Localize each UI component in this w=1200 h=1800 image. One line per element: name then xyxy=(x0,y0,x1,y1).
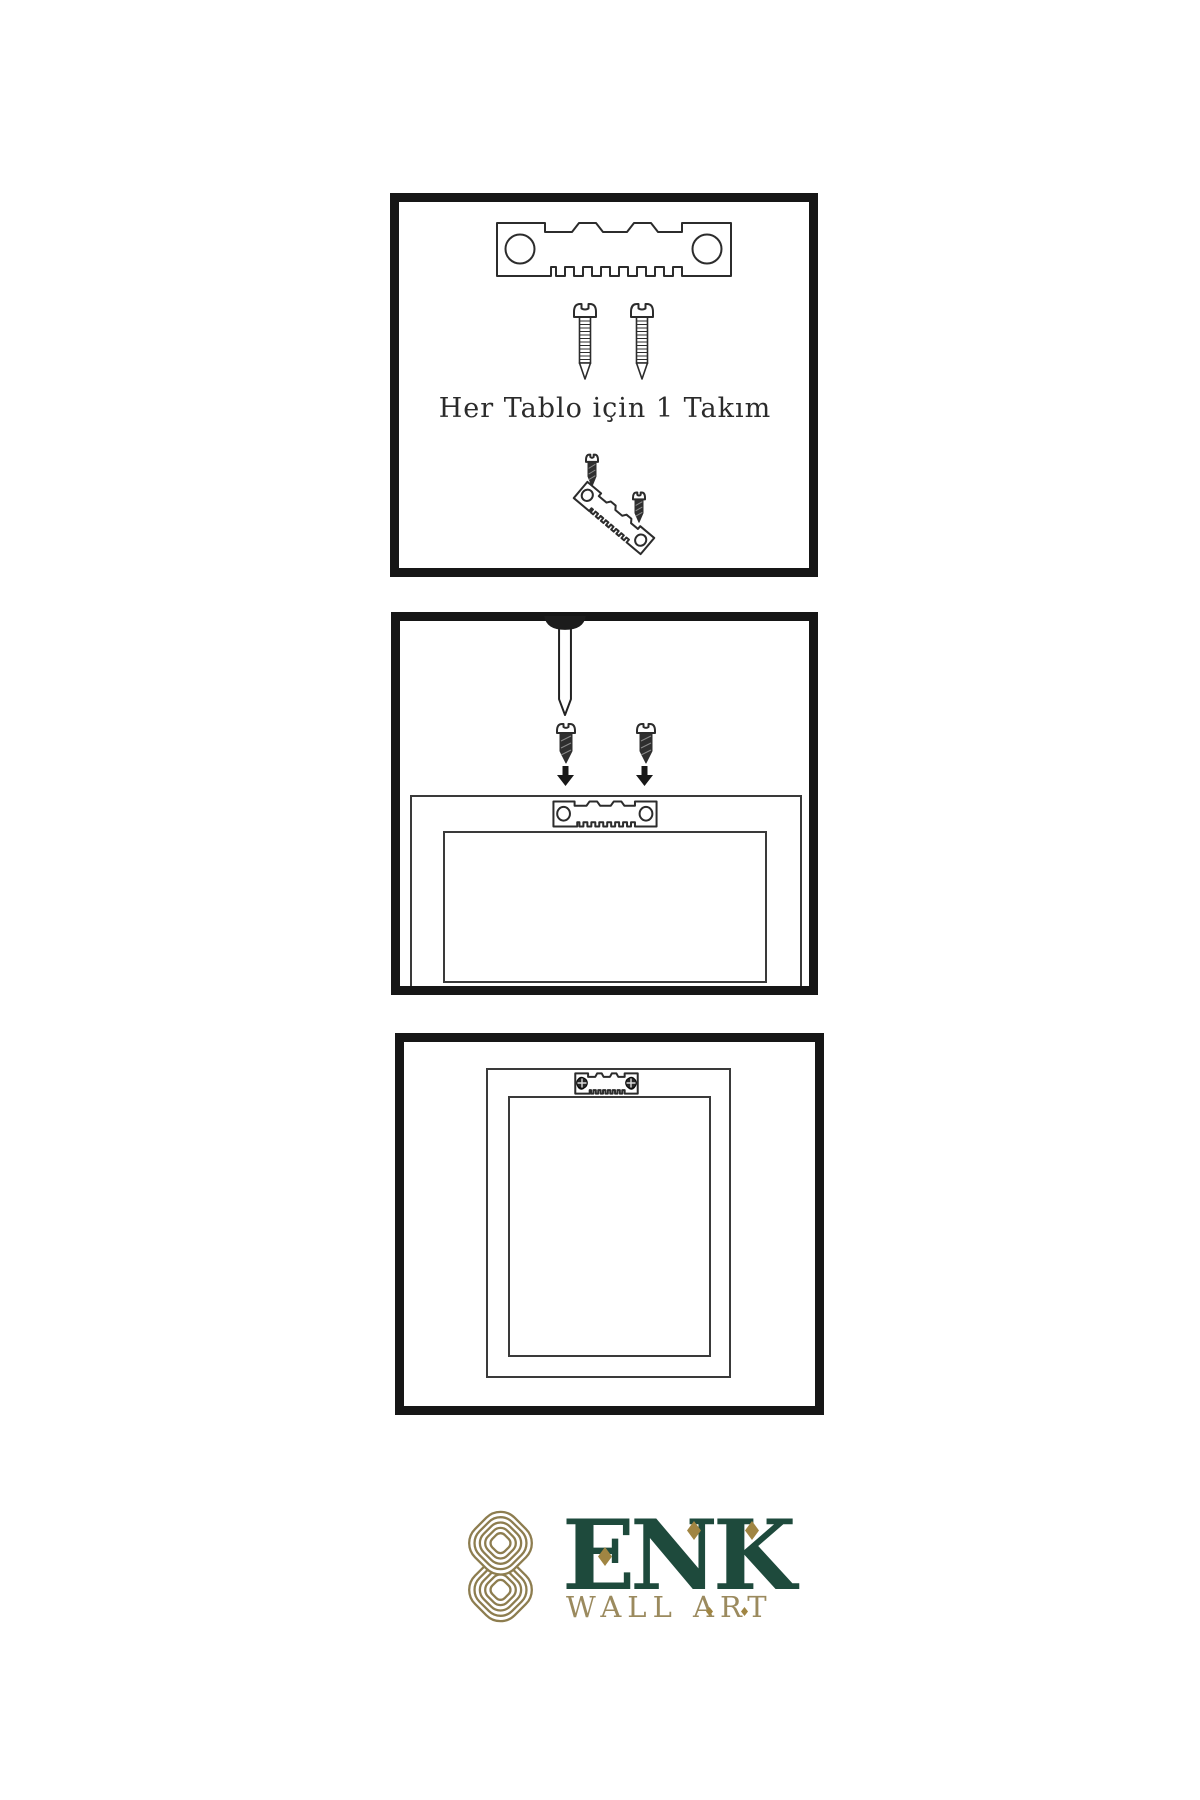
sawtooth-hanger-icon xyxy=(496,222,732,277)
sawtooth-hanger-icon xyxy=(553,801,657,827)
dark-screw-icon xyxy=(631,491,647,523)
step-1-caption: Her Tablo için 1 Takım xyxy=(391,393,819,424)
brand-tagline: WALL ART xyxy=(566,1592,786,1622)
brand-knot-icon xyxy=(438,1503,563,1630)
dark-screw-icon xyxy=(554,722,578,764)
screw-icon xyxy=(628,301,656,381)
arrow-down-icon xyxy=(557,766,574,786)
screw-icon xyxy=(571,301,599,381)
screw-head-icon xyxy=(625,1077,637,1089)
picture-frame-back-inner-edge xyxy=(443,831,767,983)
nail-icon xyxy=(543,616,587,718)
dark-screw-icon xyxy=(634,722,658,764)
picture-frame-inner-edge xyxy=(508,1096,711,1357)
instruction-sheet: Her Tablo için 1 Takım xyxy=(0,0,1200,1800)
arrow-down-icon xyxy=(636,766,653,786)
screw-head-icon xyxy=(576,1077,588,1089)
